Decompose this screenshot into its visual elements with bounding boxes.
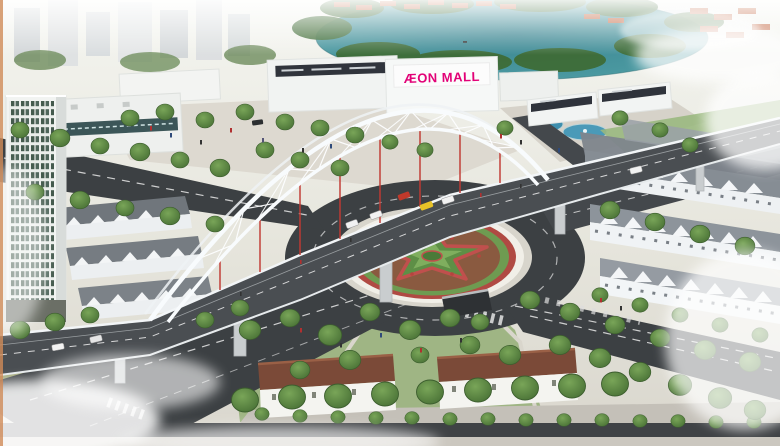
tree	[405, 412, 419, 425]
tree	[331, 160, 349, 176]
tree	[595, 414, 609, 427]
tree	[557, 414, 571, 427]
tree	[339, 350, 361, 369]
tree	[612, 111, 628, 125]
tree	[171, 152, 189, 168]
tree	[346, 127, 364, 143]
tree	[210, 159, 230, 177]
tree	[276, 114, 294, 130]
tree	[605, 316, 625, 334]
tree	[589, 348, 611, 367]
tree	[231, 300, 249, 316]
tree	[520, 291, 540, 309]
tree	[280, 309, 300, 327]
tree	[369, 412, 383, 425]
tree	[311, 120, 329, 136]
tree	[559, 374, 586, 398]
tree	[671, 415, 685, 428]
tree	[239, 320, 261, 339]
tree	[256, 142, 274, 158]
tree	[232, 388, 259, 412]
tree	[481, 413, 495, 426]
tree	[512, 376, 539, 400]
tree	[519, 414, 533, 427]
tree	[290, 361, 310, 379]
tree	[417, 380, 444, 404]
tree	[645, 213, 665, 231]
tree	[690, 225, 710, 243]
tree	[236, 104, 254, 120]
tree	[255, 408, 269, 421]
tree	[116, 200, 134, 216]
tree	[81, 307, 99, 323]
tree	[499, 345, 521, 364]
tree	[465, 378, 492, 402]
sign-building	[267, 56, 399, 113]
tree	[196, 312, 214, 328]
tree	[156, 104, 174, 120]
tree	[318, 325, 341, 346]
tree	[471, 314, 489, 330]
tree	[206, 216, 224, 232]
tree	[70, 191, 90, 209]
tree	[443, 413, 457, 426]
tree	[372, 382, 399, 406]
aeon-mall-sign-text: ÆON MALL	[404, 69, 481, 86]
tree	[560, 303, 580, 321]
tree	[160, 207, 180, 225]
frame-edge	[0, 0, 3, 446]
tree	[497, 121, 513, 135]
tree	[279, 385, 306, 409]
tree	[629, 362, 651, 381]
tree	[45, 313, 65, 331]
tree	[291, 152, 309, 168]
tree	[632, 298, 648, 312]
tree	[440, 309, 460, 327]
tree	[331, 411, 345, 424]
tree	[633, 415, 647, 428]
tree	[682, 138, 698, 152]
tree	[460, 336, 480, 354]
tree	[549, 335, 571, 354]
tree	[50, 129, 70, 147]
tree	[600, 201, 620, 219]
rendering-canvas: ÆON MALL	[0, 0, 780, 446]
tree	[91, 138, 109, 154]
tree	[293, 410, 307, 423]
tree	[130, 143, 150, 161]
tree	[602, 372, 629, 396]
tree	[11, 122, 29, 138]
tree	[652, 123, 668, 137]
tree	[196, 112, 214, 128]
tree	[382, 135, 398, 149]
tree	[360, 303, 380, 321]
fountain	[583, 129, 587, 133]
tree	[399, 320, 421, 339]
tree	[325, 384, 352, 408]
tree	[121, 110, 139, 126]
tree	[417, 143, 433, 157]
